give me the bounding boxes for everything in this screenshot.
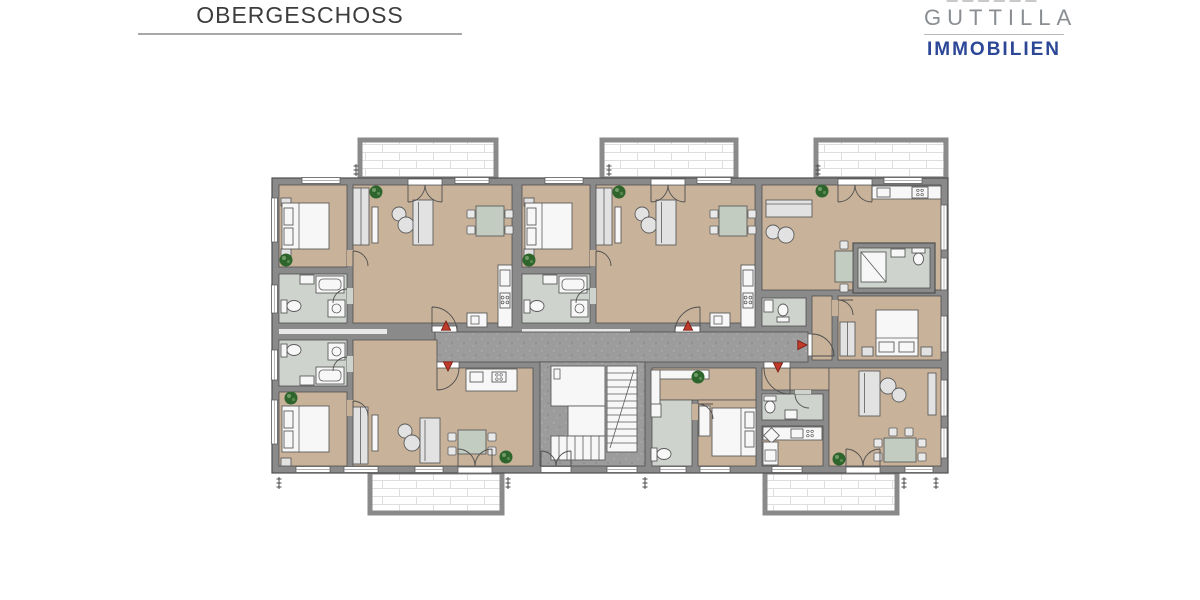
pillow: [527, 208, 536, 225]
kitchen-sink: [877, 188, 890, 197]
dimension-tick-icon: [643, 477, 648, 489]
window: [272, 350, 278, 380]
kitchen-cabinet: [710, 313, 730, 327]
washing-machine: [328, 300, 345, 317]
toilet: [281, 344, 287, 357]
kitchen-sink: [743, 270, 753, 286]
bath-sink: [891, 249, 905, 257]
pillow: [284, 208, 293, 225]
balcony-top-3: [816, 140, 946, 179]
plant-icon: [833, 453, 846, 466]
window: [302, 178, 340, 184]
window: [344, 467, 378, 473]
armchair: [404, 435, 420, 451]
sofa: [766, 200, 812, 217]
sofa: [859, 371, 880, 416]
toilet: [764, 396, 776, 401]
pillow: [284, 431, 293, 448]
dimension-tick-icon: [277, 477, 282, 489]
window: [607, 467, 637, 473]
bath-sink: [300, 275, 314, 284]
wall-shaft-gap: [279, 329, 387, 334]
window: [905, 467, 933, 473]
toilet: [657, 449, 671, 460]
corridor: [435, 332, 808, 362]
washing-machine: [571, 300, 588, 317]
bath-sink: [300, 376, 314, 385]
dining-table: [458, 430, 486, 454]
plant-icon: [500, 451, 513, 464]
window: [941, 205, 947, 250]
radiator: [615, 207, 621, 243]
toilet: [281, 300, 287, 313]
dimension-tick-icon: [354, 164, 359, 176]
pillow: [745, 431, 754, 447]
sofa: [420, 418, 440, 463]
plant-icon: [523, 254, 536, 267]
kitchen-sink: [791, 429, 803, 438]
pillow: [527, 228, 536, 245]
plant-icon: [285, 392, 298, 405]
floor-plan: [0, 0, 1200, 600]
balcony-top-1: [360, 140, 496, 179]
balcony-bottom-1: [370, 472, 502, 513]
window: [545, 178, 583, 184]
bath-sink: [785, 410, 797, 419]
page: OBERGESCHOSS ▔▔▔▔▔▔ GUTTILLA IMMOBILIEN: [0, 0, 1200, 600]
window: [941, 428, 947, 458]
window: [941, 380, 947, 416]
armchair: [641, 217, 657, 233]
dining-table: [476, 206, 504, 236]
armchair: [778, 227, 794, 243]
dimension-tick-icon: [902, 477, 907, 489]
armchair: [892, 388, 906, 402]
bath-sink: [651, 404, 661, 417]
toilet: [287, 345, 301, 356]
toilet: [912, 248, 925, 253]
window: [772, 467, 802, 473]
plant-icon: [370, 186, 383, 199]
window: [415, 467, 443, 473]
window: [941, 316, 947, 352]
dining-table: [884, 438, 916, 462]
dimension-tick-icon: [607, 164, 612, 176]
toilet: [287, 301, 301, 312]
toilet: [914, 253, 924, 265]
plant-icon: [613, 186, 626, 199]
pillow: [899, 342, 914, 352]
nightstand: [281, 458, 291, 466]
window: [884, 178, 922, 184]
elevator: [551, 366, 605, 406]
window: [941, 258, 947, 290]
radiator: [372, 415, 378, 451]
wardrobe: [699, 406, 710, 436]
toilet: [524, 300, 530, 313]
dimension-tick-icon: [816, 164, 821, 176]
dimension-tick-icon: [934, 477, 939, 489]
dining-table: [835, 251, 853, 282]
kitchen-cabinet: [467, 313, 487, 327]
window: [296, 467, 330, 473]
radiator: [372, 207, 378, 243]
kitchen-sink: [470, 372, 483, 382]
dining-table: [719, 206, 747, 236]
toilet: [765, 401, 775, 413]
pillow: [284, 411, 293, 428]
plant-icon: [280, 254, 293, 267]
window: [660, 467, 686, 473]
pillow: [879, 342, 894, 352]
bath-sink: [543, 275, 557, 284]
armchair: [398, 217, 414, 233]
plant-icon: [816, 185, 829, 198]
closet: [651, 370, 660, 406]
toilet: [778, 304, 788, 316]
toilet: [530, 301, 544, 312]
nightstand: [862, 347, 873, 356]
plant-icon: [692, 371, 705, 384]
window: [272, 400, 278, 444]
window: [455, 178, 489, 184]
dimension-tick-icon: [506, 477, 511, 489]
pillow: [284, 228, 293, 245]
window: [272, 198, 278, 242]
balcony-top-2: [602, 140, 736, 179]
window: [700, 467, 730, 473]
nightstand: [921, 347, 932, 356]
sofa: [413, 200, 433, 245]
toilet: [651, 448, 657, 461]
bathtub: [316, 367, 344, 384]
stove: [743, 293, 753, 308]
window: [697, 178, 731, 184]
stove: [492, 372, 506, 382]
balcony-bottom-2: [765, 472, 897, 513]
toilet: [777, 317, 789, 322]
bath-sink: [764, 300, 773, 312]
sideboard: [928, 373, 936, 415]
window: [272, 285, 278, 313]
stove: [912, 187, 928, 198]
stove: [500, 293, 510, 308]
pillow: [745, 412, 754, 428]
stair-landing: [568, 406, 605, 436]
sofa: [656, 200, 676, 245]
room-apt3-hall: [812, 296, 832, 360]
kitchen-sink: [500, 270, 510, 286]
